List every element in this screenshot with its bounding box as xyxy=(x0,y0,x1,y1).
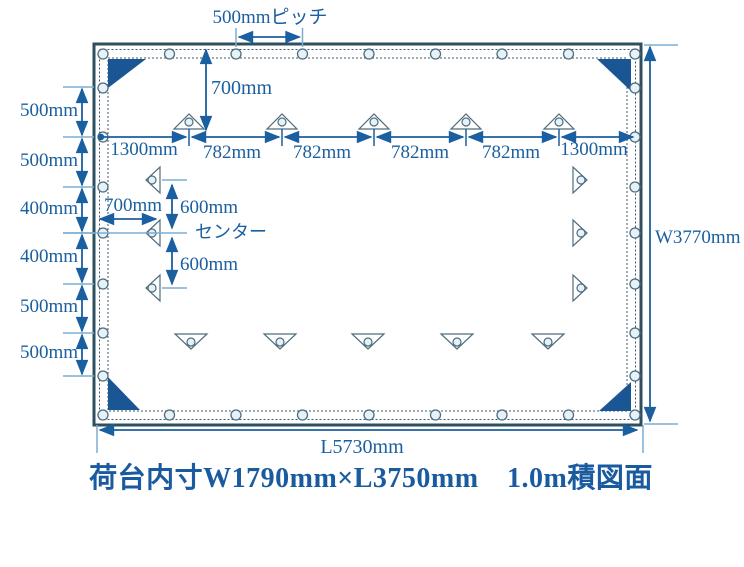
dim-label-width-total: W3770mm xyxy=(655,228,741,249)
dim-label-top-row-5: 1300mm xyxy=(560,140,628,161)
dim-label-pitch: 500mmピッチ xyxy=(212,8,327,29)
tarp-outline xyxy=(94,44,641,425)
drawing-caption: 荷台内寸W1790mm×L3750mm 1.0m積図面 xyxy=(89,456,653,496)
dim-label-left-1: 500mm xyxy=(6,151,78,172)
dim-label-center-offset: 700mm xyxy=(104,196,162,217)
dim-label-left-3: 400mm xyxy=(6,247,78,268)
center-line-label: センター xyxy=(195,223,267,243)
dim-label-left-0: 500mm xyxy=(6,101,78,122)
dim-label-top-row-2: 782mm xyxy=(293,143,351,164)
dim-label-top-offset: 700mm xyxy=(211,77,272,99)
dim-label-length-total: L5730mm xyxy=(320,436,403,458)
dim-label-left-5: 500mm xyxy=(6,343,78,364)
dim-label-center-upper: 600mm xyxy=(180,198,238,219)
dim-label-left-2: 400mm xyxy=(6,199,78,220)
dim-label-center-lower: 600mm xyxy=(180,255,238,276)
dim-label-top-row-0: 1300mm xyxy=(110,140,178,161)
tarp-drawing-page: 500mmピッチ 700mm 1300mm 782mm 782mm 782mm … xyxy=(0,0,744,567)
dim-label-top-row-3: 782mm xyxy=(391,143,449,164)
dim-label-top-row-1: 782mm xyxy=(203,143,261,164)
dim-label-top-row-4: 782mm xyxy=(482,143,540,164)
dim-label-left-4: 500mm xyxy=(6,297,78,318)
